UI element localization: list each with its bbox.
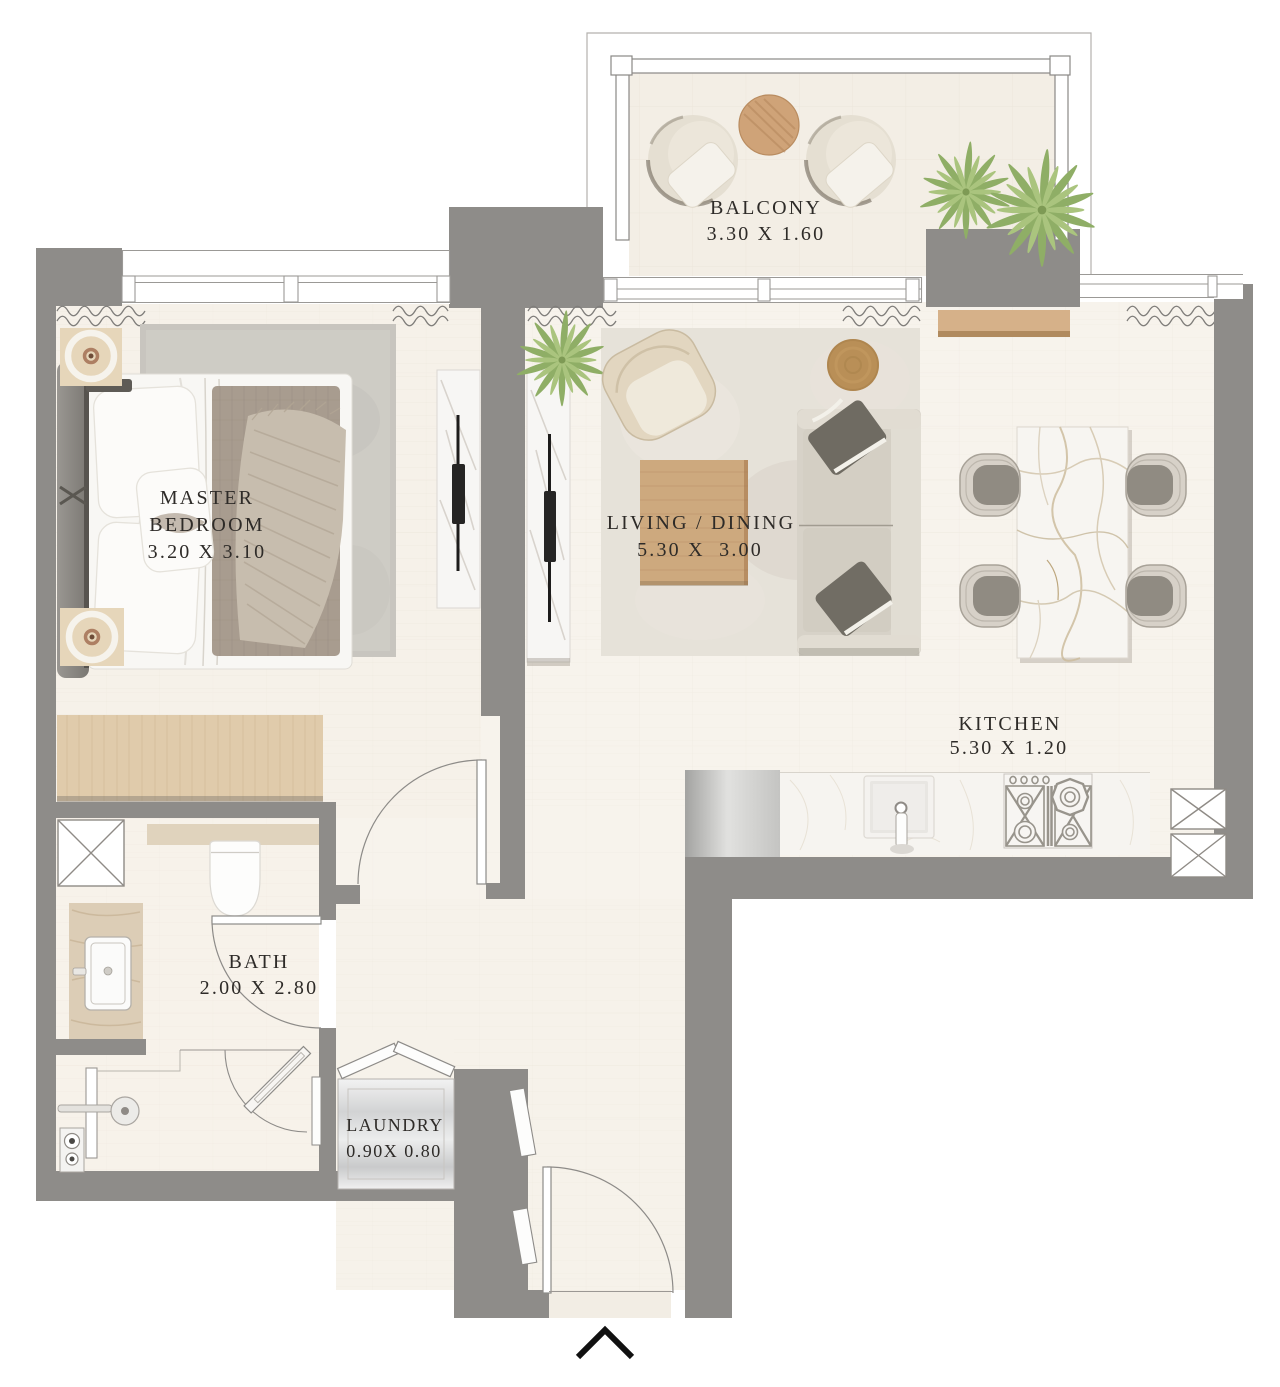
svg-text:5.30 X 3.00: 5.30 X 3.00 xyxy=(637,539,763,561)
svg-text:BEDROOM: BEDROOM xyxy=(149,514,264,536)
svg-text:5.30 X 1.20: 5.30 X 1.20 xyxy=(950,737,1069,759)
svg-text:LIVING / DINING: LIVING / DINING xyxy=(607,512,796,534)
svg-text:BALCONY: BALCONY xyxy=(710,197,822,219)
svg-text:LAUNDRY: LAUNDRY xyxy=(346,1115,444,1135)
svg-text:0.90X 0.80: 0.90X 0.80 xyxy=(346,1141,442,1161)
svg-text:3.20 X 3.10: 3.20 X 3.10 xyxy=(148,541,267,563)
svg-text:2.00 X 2.80: 2.00 X 2.80 xyxy=(200,977,319,999)
svg-text:KITCHEN: KITCHEN xyxy=(958,713,1061,735)
svg-text:3.30 X 1.60: 3.30 X 1.60 xyxy=(707,223,826,245)
svg-text:MASTER: MASTER xyxy=(160,487,254,509)
svg-text:BATH: BATH xyxy=(228,951,289,973)
